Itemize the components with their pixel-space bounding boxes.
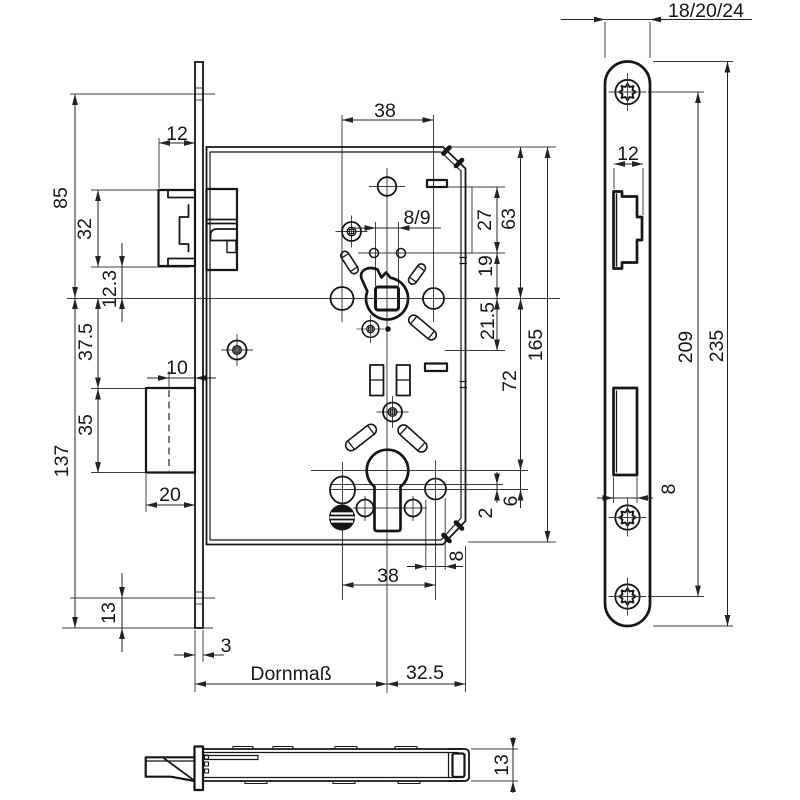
- corner-rivet-icon: [444, 535, 450, 541]
- follower-cam: [361, 268, 408, 320]
- dim-3: 3: [221, 635, 232, 657]
- dim-fp-8: 8: [658, 484, 680, 495]
- dim-13-left: 13: [98, 602, 120, 624]
- spring-icon: [396, 423, 429, 455]
- dim-32: 32: [74, 218, 96, 240]
- bottom-view: [146, 747, 469, 791]
- dim-13-bottom-view: 13: [491, 754, 513, 776]
- dim-21-5: 21.5: [477, 302, 499, 340]
- dim-8-9-spindle: 8/9: [403, 207, 430, 229]
- dim-10: 10: [166, 357, 188, 379]
- dim-63: 63: [498, 208, 520, 230]
- dim-12-latch: 12: [166, 123, 188, 145]
- bottom-case: [203, 747, 469, 784]
- dim-faceplate-width-options: 18/20/24: [668, 0, 744, 22]
- corner-rivet-icon: [456, 523, 462, 529]
- dim-20: 20: [159, 484, 181, 506]
- dim-38-top: 38: [374, 100, 396, 122]
- dim-209: 209: [675, 331, 697, 364]
- main-view: [146, 62, 467, 628]
- dim-85: 85: [50, 187, 72, 209]
- dim-19: 19: [475, 255, 497, 277]
- dim-35: 35: [75, 414, 97, 436]
- dim-12-3: 12.3: [99, 270, 121, 308]
- dim-72: 72: [499, 370, 521, 392]
- slot-mid: [425, 364, 447, 372]
- slot-top: [427, 180, 447, 187]
- dim-235: 235: [706, 330, 728, 363]
- dim-fp-12: 12: [617, 143, 639, 165]
- dim-2: 2: [475, 508, 497, 519]
- bottom-faceplate: [195, 747, 204, 791]
- dim-backset-label: Dornmaß: [250, 663, 331, 685]
- dim-165: 165: [525, 329, 547, 362]
- euro-cylinder-hole: [367, 450, 409, 531]
- spring-icon: [407, 262, 427, 286]
- faceplate-edge: [195, 62, 203, 628]
- dim-6: 6: [500, 496, 522, 507]
- latch-cutout: [614, 192, 643, 269]
- deadbolt: [146, 388, 195, 473]
- dim-8-hole: 8: [446, 551, 468, 562]
- lock-technical-drawing: 85 137 32 12.3 37.5 35 13 12 38 8/9 10 2…: [0, 0, 800, 800]
- dim-27: 27: [474, 209, 496, 231]
- dim-137: 137: [51, 445, 73, 478]
- dim-38-bottom: 38: [377, 565, 399, 587]
- lock-mechanism: [221, 177, 447, 531]
- dim-32-5: 32.5: [406, 662, 444, 684]
- extension-and-center-lines: [62, 22, 733, 781]
- dim-37-5: 37.5: [75, 323, 97, 361]
- spring-icon: [343, 422, 378, 453]
- pin-dot: [385, 326, 391, 332]
- end-stud: [453, 754, 465, 778]
- bottom-latch-bolt: [146, 757, 195, 781]
- latch-bolt: [159, 189, 238, 270]
